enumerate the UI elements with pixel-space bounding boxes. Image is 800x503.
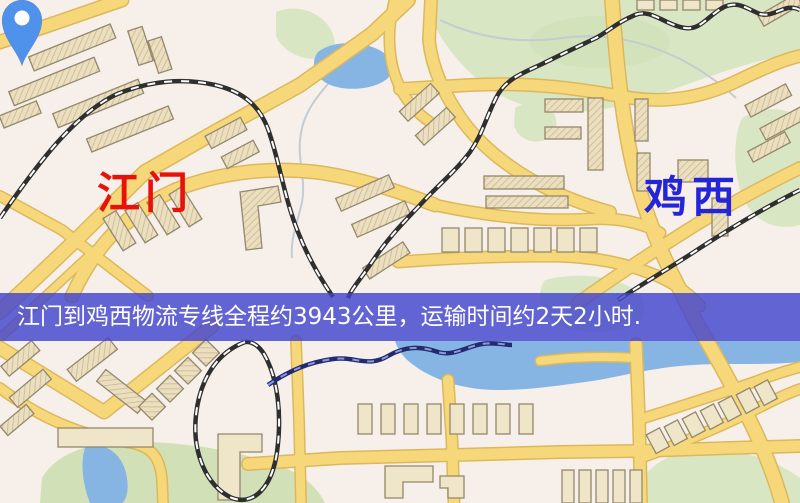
map-screenshot: 江门 鸡西 江门到鸡西物流专线全程约3943公里，运输时间约2天2小时. <box>0 0 800 503</box>
map-canvas <box>0 0 800 503</box>
route-info-banner: 江门到鸡西物流专线全程约3943公里，运输时间约2天2小时. <box>0 293 800 341</box>
destination-city-label: 鸡西 <box>612 177 772 220</box>
route-info-text: 江门到鸡西物流专线全程约3943公里，运输时间约2天2小时. <box>17 304 641 330</box>
destination-pin-icon <box>0 0 44 66</box>
origin-city-label: 江门 <box>65 173 225 216</box>
